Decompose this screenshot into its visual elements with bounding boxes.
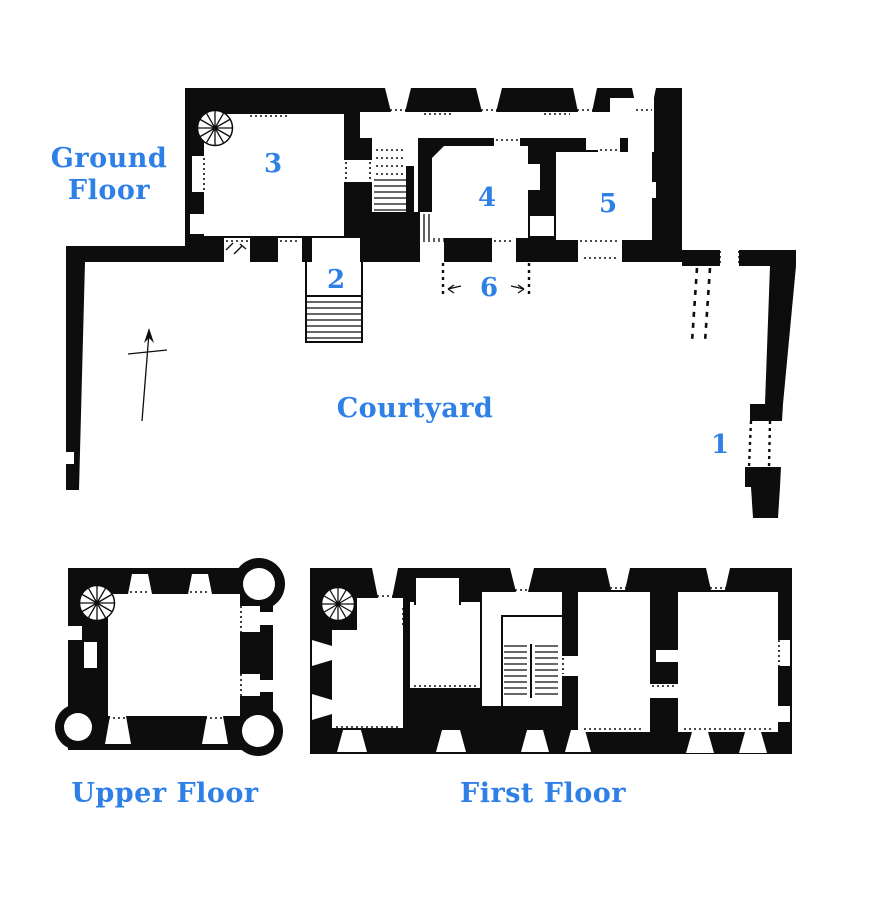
room-number-2: 2 xyxy=(323,265,349,295)
room-number-6: 6 xyxy=(476,273,502,303)
ground-floor-spiral-stair-icon xyxy=(198,111,233,146)
first-floor-plan xyxy=(310,568,792,754)
upper-floor-label: Upper Floor xyxy=(60,778,270,810)
tower-room xyxy=(242,715,274,747)
courtyard-gate xyxy=(749,421,770,467)
upper-floor-spiral-stair-icon xyxy=(80,586,115,621)
castle-floor-plan-page: Ground Floor Courtyard Upper Floor First… xyxy=(0,0,870,900)
room-number-3: 3 xyxy=(260,149,286,179)
tower-room xyxy=(243,568,275,600)
room-number-4: 4 xyxy=(474,183,500,213)
ground-floor-label: Ground Floor xyxy=(34,143,184,207)
room-number-1: 1 xyxy=(707,430,733,460)
floor-plan-drawing xyxy=(0,0,870,900)
path-dashes xyxy=(692,268,710,342)
first-floor-label: First Floor xyxy=(438,778,648,810)
room-number-5: 5 xyxy=(595,189,621,219)
courtyard-east-wall xyxy=(682,250,796,518)
first-floor-spiral-stair-icon xyxy=(322,588,355,621)
courtyard-label: Courtyard xyxy=(330,393,500,425)
north-arrow-icon xyxy=(128,328,167,421)
tower-room xyxy=(64,713,92,741)
courtyard-west-wall xyxy=(64,246,192,490)
